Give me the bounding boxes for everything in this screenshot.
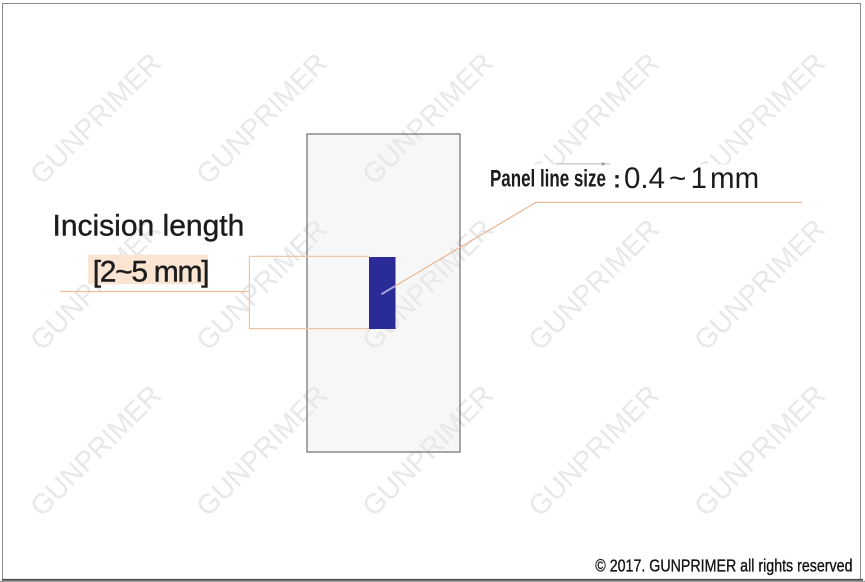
svg-text:mm: mm — [710, 162, 759, 195]
svg-text:© 2017. GUNPRIMER all rights r: © 2017. GUNPRIMER all rights reserved — [595, 556, 852, 576]
svg-text:Panel line size: Panel line size — [490, 166, 606, 193]
svg-text:~: ~ — [669, 162, 686, 195]
svg-text:[2~5 mm]: [2~5 mm] — [93, 255, 208, 288]
svg-text:Incision length: Incision length — [53, 210, 245, 243]
svg-text:1: 1 — [691, 162, 707, 195]
svg-text::: : — [613, 167, 621, 194]
svg-text:0.4: 0.4 — [624, 162, 665, 195]
